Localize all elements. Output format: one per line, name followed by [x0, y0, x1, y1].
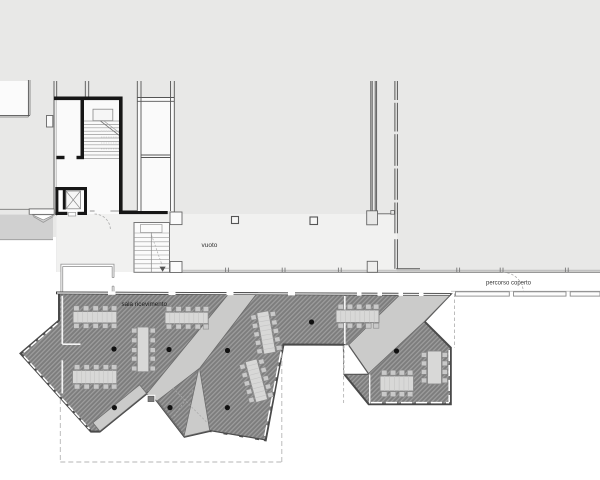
svg-text:vuoto: vuoto [202, 242, 218, 249]
svg-text:percorso coperto: percorso coperto [486, 281, 532, 287]
svg-text:sala ricevimento: sala ricevimento [122, 301, 168, 308]
